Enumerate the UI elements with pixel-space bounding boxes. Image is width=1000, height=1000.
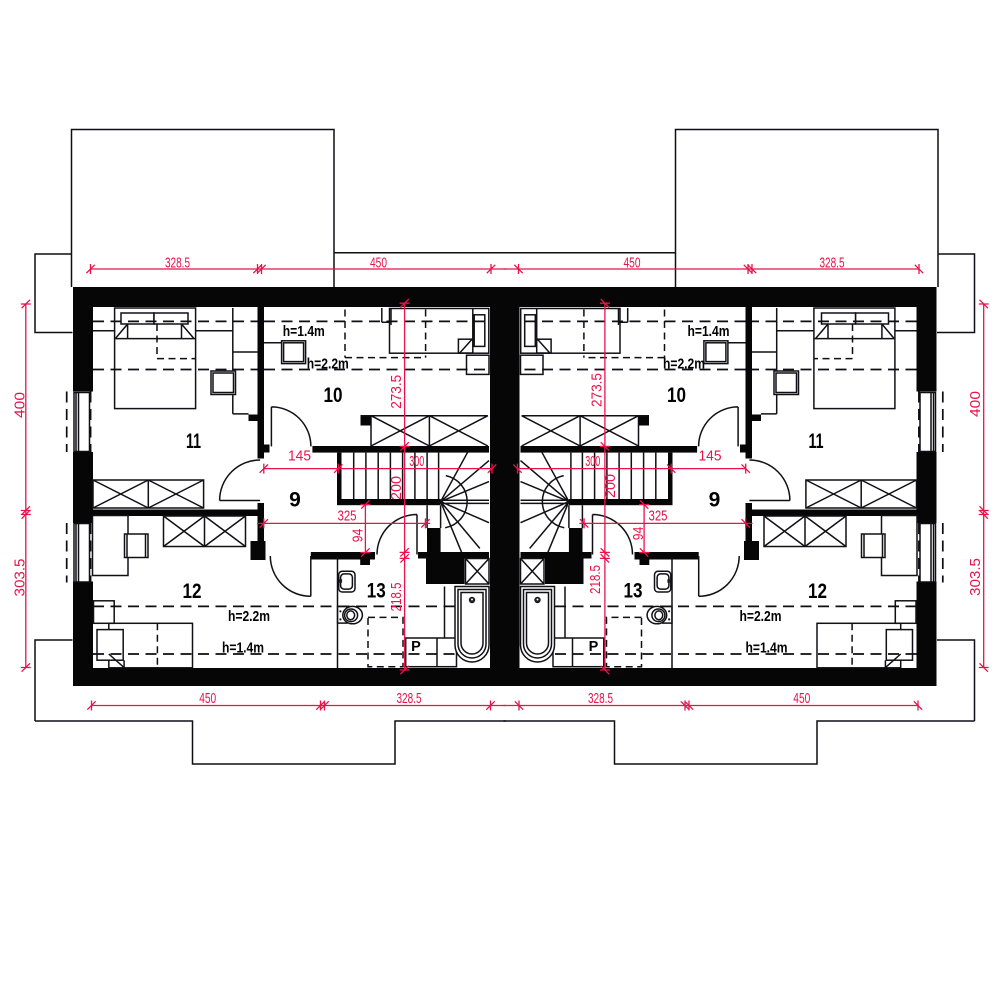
- svg-text:h=1.4m: h=1.4m: [688, 324, 730, 340]
- svg-text:200: 200: [389, 476, 405, 500]
- svg-text:400: 400: [13, 392, 29, 418]
- svg-text:h=2.2m: h=2.2m: [228, 609, 270, 625]
- svg-text:13: 13: [624, 580, 643, 603]
- svg-text:11: 11: [186, 430, 201, 453]
- svg-text:10: 10: [324, 384, 343, 407]
- svg-text:P: P: [411, 639, 421, 655]
- svg-text:12: 12: [808, 580, 827, 603]
- svg-text:94: 94: [631, 527, 647, 541]
- svg-text:h=1.4m: h=1.4m: [746, 641, 788, 657]
- svg-text:P: P: [589, 639, 599, 655]
- svg-text:218.5: 218.5: [389, 583, 405, 612]
- svg-text:10: 10: [667, 384, 686, 407]
- svg-text:303.5: 303.5: [13, 559, 29, 597]
- svg-text:450: 450: [624, 255, 641, 271]
- svg-text:145: 145: [288, 449, 311, 465]
- svg-text:325: 325: [338, 509, 357, 525]
- svg-text:h=2.2m: h=2.2m: [307, 357, 349, 373]
- svg-text:273.5: 273.5: [389, 375, 405, 409]
- svg-text:9: 9: [709, 489, 721, 512]
- svg-text:h=1.4m: h=1.4m: [222, 641, 264, 657]
- svg-text:303.5: 303.5: [968, 558, 984, 596]
- svg-text:328.5: 328.5: [397, 691, 422, 707]
- svg-text:145: 145: [699, 449, 722, 465]
- svg-text:450: 450: [793, 691, 810, 707]
- svg-text:12: 12: [183, 580, 202, 603]
- svg-text:328.5: 328.5: [165, 255, 190, 271]
- svg-text:450: 450: [370, 255, 387, 271]
- svg-text:325: 325: [649, 509, 668, 525]
- svg-text:11: 11: [809, 430, 824, 453]
- svg-text:300: 300: [409, 454, 424, 470]
- svg-text:328.5: 328.5: [820, 255, 845, 271]
- svg-text:94: 94: [351, 529, 367, 543]
- svg-text:218.5: 218.5: [588, 565, 604, 594]
- svg-text:400: 400: [968, 391, 984, 417]
- svg-text:13: 13: [367, 580, 386, 603]
- svg-text:300: 300: [585, 454, 600, 470]
- svg-text:9: 9: [289, 489, 301, 512]
- svg-text:328.5: 328.5: [588, 691, 613, 707]
- svg-text:273.5: 273.5: [590, 373, 606, 407]
- svg-text:200: 200: [603, 474, 619, 498]
- svg-text:h=2.2m: h=2.2m: [663, 357, 705, 373]
- svg-text:h=1.4m: h=1.4m: [283, 324, 325, 340]
- svg-text:450: 450: [199, 691, 216, 707]
- svg-text:h=2.2m: h=2.2m: [740, 609, 782, 625]
